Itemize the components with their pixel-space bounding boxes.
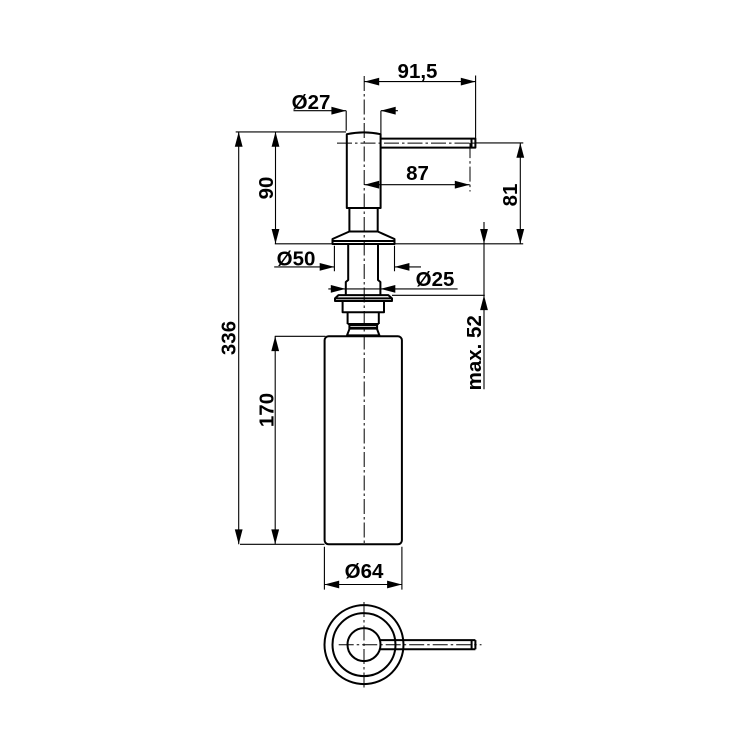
svg-text:max. 52: max. 52 bbox=[463, 315, 486, 390]
svg-text:87: 87 bbox=[406, 162, 429, 185]
svg-text:91,5: 91,5 bbox=[398, 60, 438, 83]
svg-text:Ø64: Ø64 bbox=[345, 560, 384, 583]
svg-text:90: 90 bbox=[255, 177, 278, 200]
svg-text:336: 336 bbox=[218, 321, 241, 355]
svg-text:Ø50: Ø50 bbox=[277, 247, 316, 270]
svg-text:81: 81 bbox=[499, 184, 522, 207]
svg-text:Ø25: Ø25 bbox=[416, 268, 455, 291]
svg-text:170: 170 bbox=[256, 393, 279, 427]
svg-text:Ø27: Ø27 bbox=[292, 91, 331, 114]
